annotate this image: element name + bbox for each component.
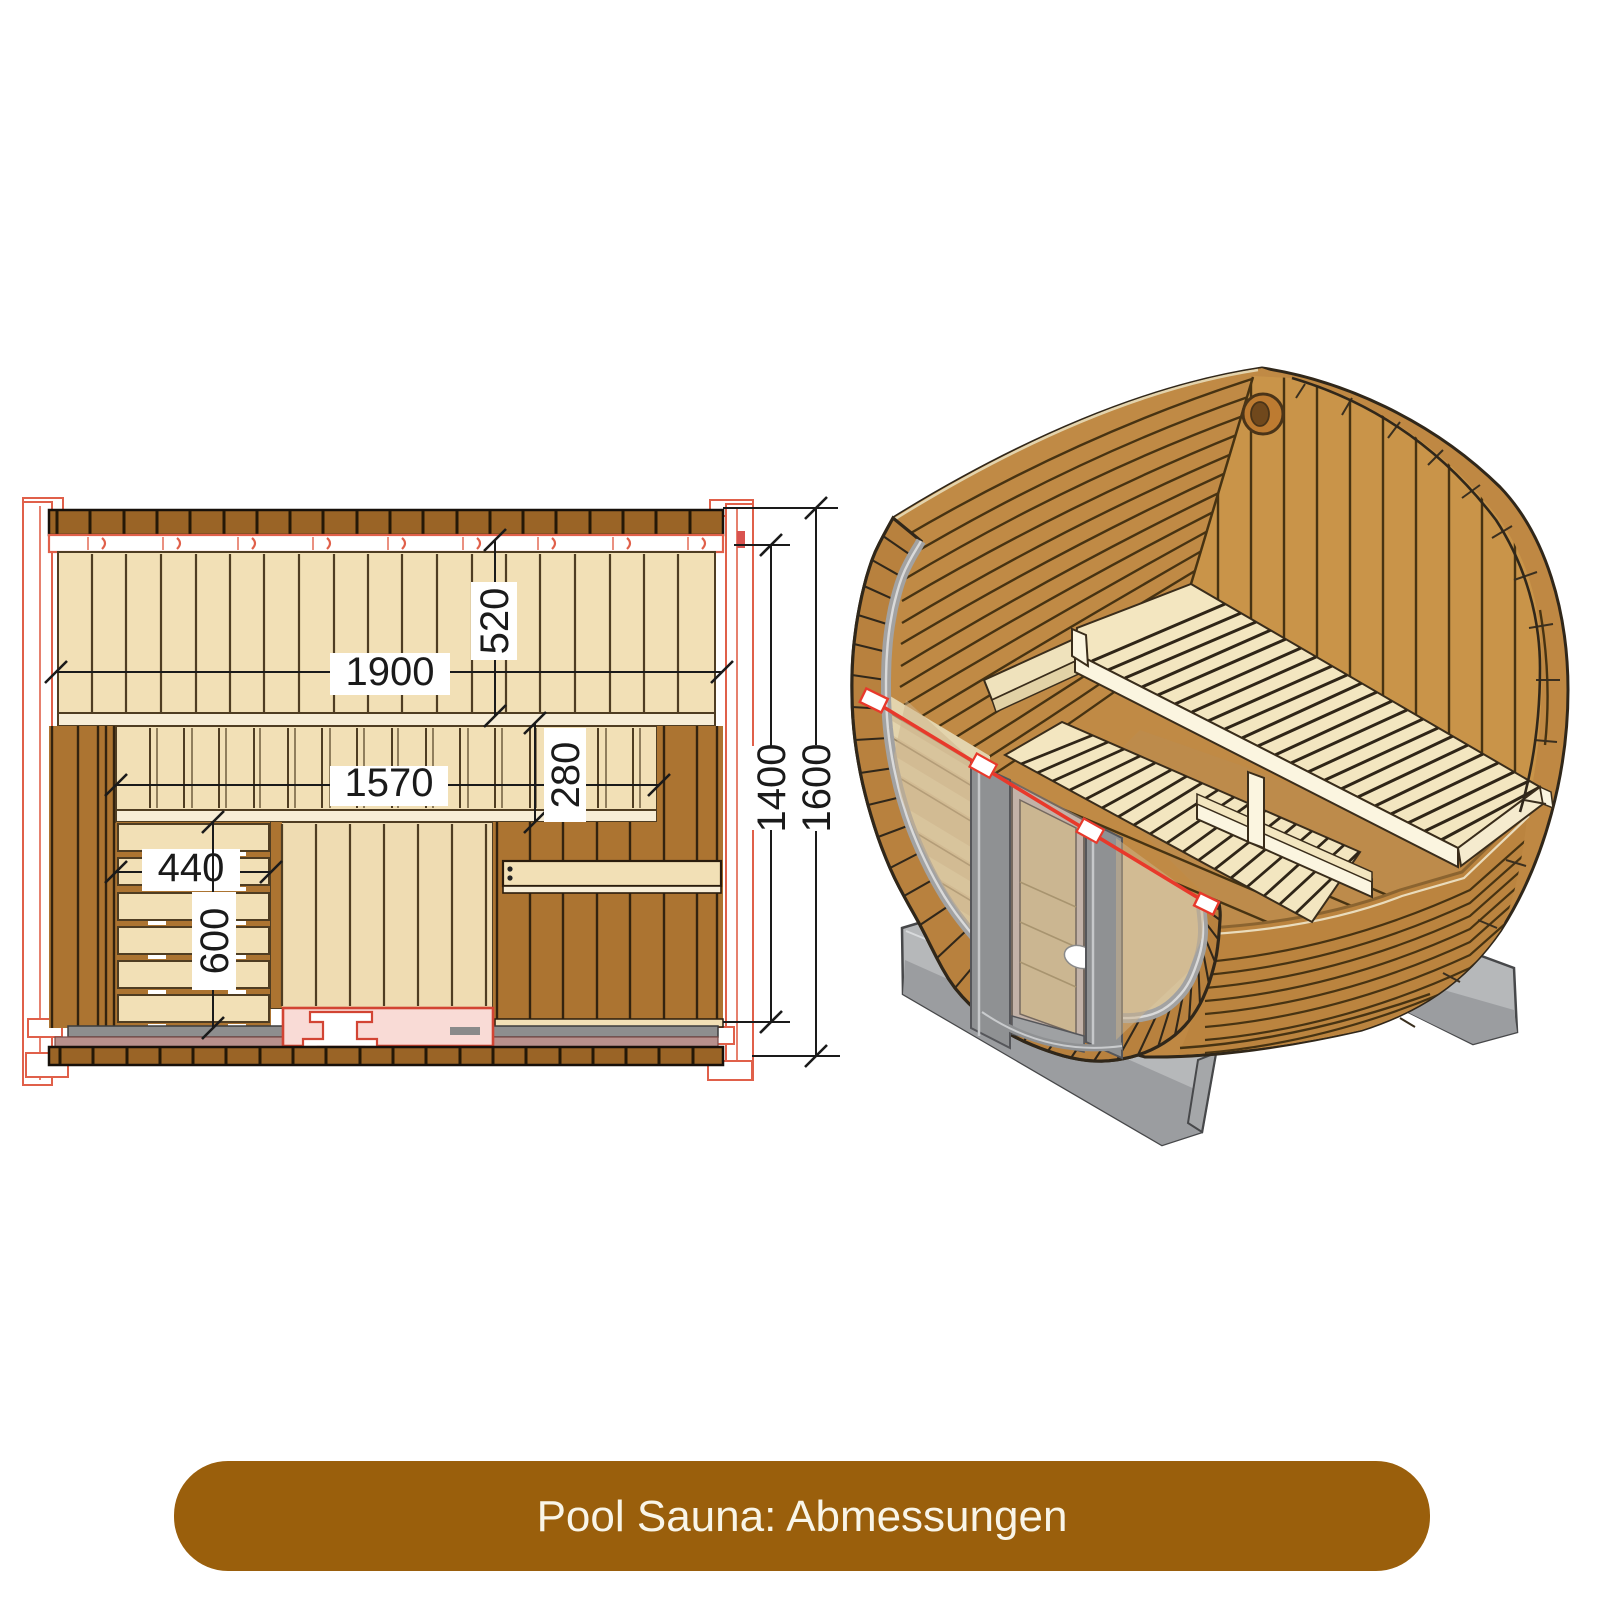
- svg-text:Pool Sauna: Abmessungen: Pool Sauna: Abmessungen: [537, 1492, 1068, 1541]
- svg-text:1570: 1570: [345, 761, 434, 805]
- svg-text:600: 600: [193, 908, 237, 975]
- svg-text:440: 440: [158, 846, 225, 890]
- svg-text:1900: 1900: [346, 650, 435, 694]
- svg-text:520: 520: [473, 588, 517, 655]
- svg-text:1400: 1400: [750, 744, 794, 833]
- svg-text:1600: 1600: [795, 744, 839, 833]
- svg-text:280: 280: [544, 742, 588, 809]
